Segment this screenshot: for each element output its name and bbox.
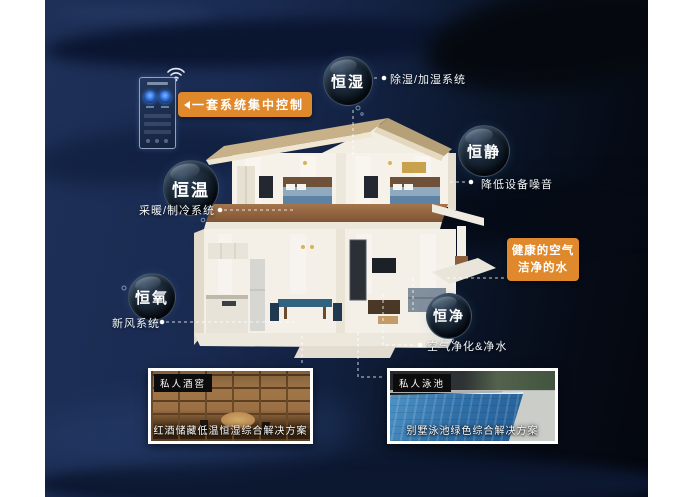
bubble-label: 恒静 (467, 141, 501, 162)
callout-line: 洁净的水 (511, 260, 575, 277)
card-caption: 红酒储藏低温恒湿综合解决方案 (151, 422, 310, 437)
panel-footer-dots (146, 139, 150, 143)
house-lower-floor (194, 229, 456, 345)
label-noise-reduction: 降低设备噪音 (481, 176, 553, 192)
panel-control-row (144, 114, 171, 118)
bubble-label: 恒净 (433, 306, 465, 326)
bubble-constant-purity: 恒净 (426, 293, 472, 339)
smart-home-poster: 恒湿 恒静 恒温 恒氧 恒净 除湿/加湿系统 降低设备噪音 采暖/制冷系统 新风… (0, 0, 700, 497)
bubble-label: 恒氧 (135, 287, 169, 308)
card-tag: 私人酒窖 (154, 374, 212, 392)
callout-text: 一套系统集中控制 (192, 98, 304, 112)
panel-control-row (144, 122, 171, 126)
card-private-pool: 私人泳池 别墅泳池绿色综合解决方案 (387, 368, 558, 444)
callout-central-control: 一套系统集中控制 (178, 92, 312, 117)
panel-dial-label (161, 106, 169, 108)
label-purification: 空气净化&净水 (427, 338, 507, 354)
card-wine-cellar: 私人酒窖 红酒储藏低温恒湿综合解决方案 (148, 368, 313, 444)
bubble-label: 恒湿 (331, 71, 365, 92)
card-caption: 别墅泳池绿色综合解决方案 (390, 422, 555, 437)
card-tag: 私人泳池 (393, 374, 451, 392)
panel-header-bar (147, 82, 168, 85)
smart-control-panel-icon (139, 77, 176, 149)
house-ground-slab (194, 333, 456, 358)
panel-dial (144, 91, 156, 103)
house-mid-slab (204, 204, 448, 229)
bubble-constant-oxygen: 恒氧 (128, 273, 176, 321)
panel-control-row (144, 130, 171, 134)
callout-line: 健康的空气 (511, 243, 575, 260)
bubble-constant-humidity: 恒湿 (323, 56, 373, 106)
bubble-constant-quiet: 恒静 (458, 125, 510, 177)
label-fresh-air-system: 新风系统 (112, 315, 160, 331)
bubble-label: 恒温 (172, 176, 210, 201)
label-hvac-system: 采暖/制冷系统 (139, 202, 215, 218)
label-dehumidify-system: 除湿/加湿系统 (390, 71, 466, 87)
panel-dial (159, 91, 171, 103)
panel-dial-label (146, 106, 154, 108)
arrow-left-icon (180, 101, 190, 109)
callout-healthy-air-water: 健康的空气 洁净的水 (507, 238, 579, 281)
